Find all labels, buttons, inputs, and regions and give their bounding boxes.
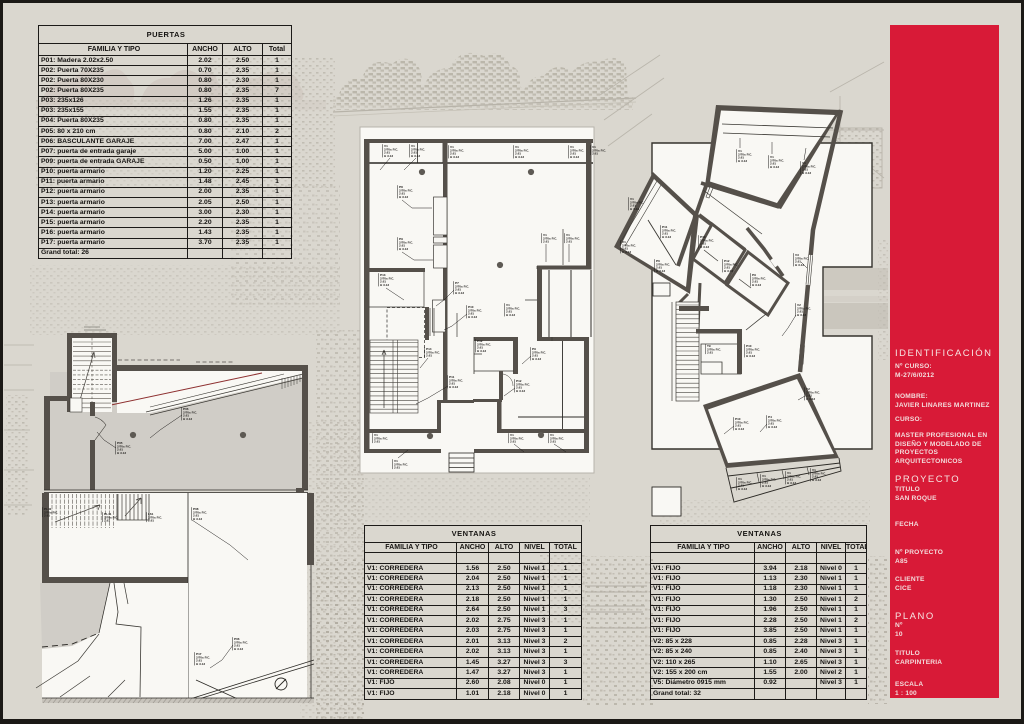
svg-text:V12/70x P.C.2.61H 3.13: V12/70x P.C.2.61H 3.13 (738, 477, 752, 491)
svg-text:V12/70x P.C.2.61H 3.13: V12/70x P.C.2.61H 3.13 (762, 474, 776, 488)
svg-text:V12/70x P.C.2.61: V12/70x P.C.2.61 (592, 145, 606, 156)
